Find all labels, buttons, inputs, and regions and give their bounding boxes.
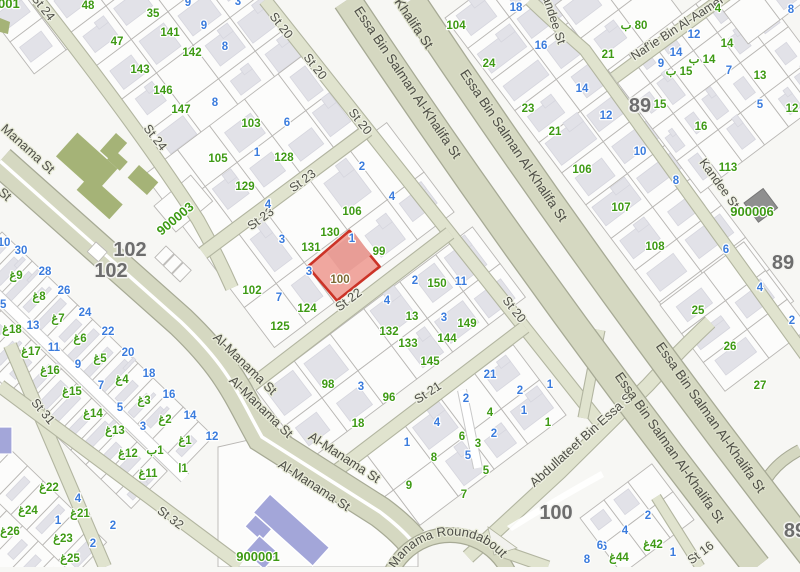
svg-text:15: 15: [654, 99, 667, 111]
svg-text:89: 89: [784, 520, 800, 542]
svg-text:21: 21: [549, 126, 562, 138]
svg-text:9: 9: [201, 20, 207, 32]
svg-text:12: 12: [688, 29, 701, 41]
svg-text:4: 4: [384, 295, 391, 307]
svg-text:100: 100: [539, 502, 572, 524]
svg-text:‭غ3‬: ‭غ3‬: [137, 395, 150, 408]
svg-text:4: 4: [389, 191, 396, 203]
svg-text:48: 48: [82, 0, 95, 12]
svg-text:143: 143: [130, 64, 149, 76]
svg-text:27: 27: [754, 380, 767, 392]
svg-text:128: 128: [274, 152, 294, 164]
svg-text:132: 132: [379, 326, 398, 338]
svg-text:‭غ25‬: ‭غ25‬: [60, 553, 80, 566]
svg-text:8: 8: [788, 4, 795, 16]
svg-text:8: 8: [431, 452, 438, 464]
svg-text:129: 129: [235, 181, 254, 193]
svg-text:20: 20: [122, 347, 135, 359]
svg-text:2: 2: [789, 315, 795, 327]
svg-text:13: 13: [406, 311, 419, 323]
svg-text:2: 2: [412, 275, 418, 287]
svg-text:133: 133: [398, 338, 417, 350]
svg-text:‭غ44‬: ‭غ44‬: [609, 552, 629, 565]
svg-text:14: 14: [576, 83, 589, 95]
svg-text:‭غ9‬: ‭غ9‬: [9, 270, 22, 283]
svg-text:5: 5: [465, 450, 472, 462]
svg-text:106: 106: [342, 206, 361, 218]
svg-text:106: 106: [572, 164, 591, 176]
svg-text:102: 102: [242, 285, 261, 297]
svg-text:‭غ42‬: ‭غ42‬: [643, 539, 663, 552]
svg-text:24: 24: [79, 307, 92, 319]
svg-text:24: 24: [483, 58, 496, 70]
svg-text:‭غ17‬: ‭غ17‬: [21, 346, 41, 359]
svg-text:6: 6: [284, 117, 290, 129]
svg-text:99: 99: [373, 246, 386, 258]
svg-text:16: 16: [695, 121, 708, 133]
svg-text:14: 14: [184, 410, 197, 422]
svg-text:14: 14: [721, 38, 734, 50]
svg-text:2: 2: [110, 520, 116, 532]
svg-text:12: 12: [600, 110, 613, 122]
svg-text:102: 102: [94, 260, 127, 282]
svg-text:2: 2: [90, 538, 96, 550]
svg-text:6: 6: [597, 540, 603, 552]
svg-text:11: 11: [48, 342, 61, 354]
svg-text:15: 15: [0, 299, 7, 311]
svg-text:6: 6: [723, 244, 729, 256]
svg-text:‭ب 15‬: ‭ب 15‬: [666, 66, 693, 78]
svg-text:108: 108: [645, 241, 665, 253]
svg-text:9: 9: [75, 359, 81, 371]
svg-text:‭غ1‬: ‭غ1‬: [178, 435, 192, 448]
svg-text:7: 7: [461, 489, 467, 501]
svg-text:16: 16: [163, 389, 176, 401]
svg-text:3: 3: [235, 0, 241, 8]
svg-text:13: 13: [754, 70, 767, 82]
svg-text:12: 12: [206, 431, 219, 443]
svg-text:1: 1: [254, 147, 261, 159]
svg-text:11: 11: [455, 276, 468, 288]
svg-text:1: 1: [404, 437, 411, 449]
svg-text:‭ا1‬: ‭ا1‬: [178, 462, 188, 475]
svg-text:144: 144: [437, 333, 457, 345]
svg-text:3: 3: [140, 421, 146, 433]
svg-text:3: 3: [475, 438, 481, 450]
svg-text:3: 3: [306, 266, 312, 278]
svg-text:4: 4: [757, 282, 764, 294]
svg-text:2: 2: [645, 510, 651, 522]
svg-text:‭ب1‬: ‭ب1‬: [146, 445, 164, 457]
svg-text:47: 47: [111, 36, 124, 48]
svg-text:98: 98: [322, 379, 335, 391]
svg-text:150: 150: [427, 278, 446, 290]
svg-text:30: 30: [15, 245, 28, 257]
svg-text:‭غ13‬: ‭غ13‬: [105, 425, 125, 438]
svg-text:‭غ8‬: ‭غ8‬: [32, 291, 46, 304]
svg-text:2: 2: [359, 161, 365, 173]
svg-text:4: 4: [265, 199, 272, 211]
svg-text:‭غ2‬: ‭غ2‬: [158, 414, 171, 427]
svg-text:21: 21: [602, 49, 615, 61]
svg-text:‭غ12‬: ‭غ12‬: [118, 448, 138, 461]
svg-text:125: 125: [270, 321, 290, 333]
svg-text:‭غ24‬: ‭غ24‬: [18, 505, 38, 518]
svg-text:4: 4: [434, 417, 441, 429]
svg-text:149: 149: [457, 318, 476, 330]
svg-text:3: 3: [358, 381, 364, 393]
svg-text:25: 25: [692, 305, 705, 317]
svg-text:130: 130: [320, 227, 339, 239]
svg-text:1: 1: [545, 417, 552, 429]
svg-text:100: 100: [330, 274, 349, 286]
svg-text:1: 1: [670, 547, 677, 559]
svg-text:‭ب 80‬: ‭ب 80‬: [621, 20, 648, 32]
svg-text:4: 4: [715, 3, 722, 15]
svg-text:4: 4: [75, 493, 82, 505]
svg-text:‭غ16‬: ‭غ16‬: [40, 365, 60, 378]
svg-text:900001: 900001: [0, 0, 20, 11]
svg-text:28: 28: [39, 266, 52, 278]
svg-text:18: 18: [352, 418, 365, 430]
svg-text:‭غ23‬: ‭غ23‬: [53, 533, 73, 546]
svg-text:26: 26: [724, 341, 737, 353]
svg-text:900001: 900001: [236, 549, 279, 564]
svg-text:7: 7: [726, 65, 732, 77]
svg-text:96: 96: [383, 392, 396, 404]
svg-text:142: 142: [182, 47, 201, 59]
svg-text:16: 16: [535, 40, 548, 52]
svg-text:7: 7: [98, 380, 104, 392]
svg-text:900006: 900006: [730, 204, 773, 219]
svg-text:9: 9: [658, 58, 664, 70]
svg-text:3: 3: [279, 234, 285, 246]
svg-text:1: 1: [349, 233, 356, 245]
svg-text:‭غ15‬: ‭غ15‬: [62, 386, 82, 399]
svg-text:7: 7: [276, 292, 282, 304]
svg-text:4: 4: [487, 407, 494, 419]
svg-text:9: 9: [406, 480, 412, 492]
svg-text:4: 4: [622, 525, 629, 537]
svg-text:141: 141: [160, 27, 180, 39]
svg-text:6: 6: [459, 431, 465, 443]
svg-text:10: 10: [634, 146, 647, 158]
svg-text:89: 89: [772, 252, 794, 274]
svg-text:‭غ7‬: ‭غ7‬: [51, 313, 64, 326]
svg-text:‭غ22‬: ‭غ22‬: [39, 482, 59, 495]
svg-text:102: 102: [113, 239, 146, 261]
svg-text:‭غ5‬: ‭غ5‬: [93, 353, 107, 366]
svg-text:5: 5: [117, 402, 124, 414]
svg-text:1: 1: [547, 379, 554, 391]
svg-text:9: 9: [185, 0, 191, 9]
svg-text:‭غ6‬: ‭غ6‬: [73, 333, 86, 346]
svg-text:‭غ11‬: ‭غ11‬: [138, 468, 158, 481]
svg-text:104: 104: [446, 20, 466, 32]
svg-text:8: 8: [212, 97, 219, 109]
svg-text:89: 89: [629, 95, 651, 117]
svg-text:113: 113: [719, 162, 738, 174]
svg-text:8: 8: [222, 41, 229, 53]
svg-text:13: 13: [27, 320, 40, 332]
svg-text:18: 18: [510, 2, 523, 14]
svg-text:146: 146: [153, 85, 172, 97]
svg-text:26: 26: [58, 285, 71, 297]
svg-text:10: 10: [0, 237, 10, 249]
svg-text:35: 35: [147, 8, 160, 20]
svg-text:18: 18: [143, 368, 156, 380]
svg-text:1: 1: [55, 515, 62, 527]
svg-text:124: 124: [297, 303, 317, 315]
svg-text:‭غ26‬: ‭غ26‬: [0, 526, 20, 539]
svg-text:2: 2: [517, 385, 523, 397]
svg-text:5: 5: [483, 465, 490, 477]
svg-text:‭ب 14‬: ‭ب 14‬: [689, 54, 716, 66]
svg-text:107: 107: [611, 202, 630, 214]
svg-text:8: 8: [673, 175, 680, 187]
svg-text:2: 2: [463, 393, 469, 405]
svg-text:‭غ18‬: ‭غ18‬: [2, 324, 22, 337]
svg-text:8: 8: [584, 554, 591, 566]
svg-text:145: 145: [420, 356, 440, 368]
svg-text:5: 5: [757, 99, 764, 111]
svg-text:‭غ21‬: ‭غ21‬: [70, 508, 90, 521]
svg-text:105: 105: [208, 153, 228, 165]
svg-text:21: 21: [484, 369, 497, 381]
svg-text:14: 14: [670, 47, 683, 59]
svg-text:23: 23: [522, 103, 535, 115]
svg-text:103: 103: [241, 118, 260, 130]
svg-text:147: 147: [171, 104, 190, 116]
svg-text:3: 3: [441, 312, 447, 324]
svg-text:‭غ14‬: ‭غ14‬: [83, 408, 103, 421]
svg-text:12: 12: [786, 103, 799, 115]
svg-text:‭غ4‬: ‭غ4‬: [115, 374, 129, 387]
svg-text:22: 22: [102, 326, 115, 338]
svg-text:1: 1: [521, 405, 528, 417]
svg-text:2: 2: [491, 428, 497, 440]
svg-text:131: 131: [301, 242, 321, 254]
